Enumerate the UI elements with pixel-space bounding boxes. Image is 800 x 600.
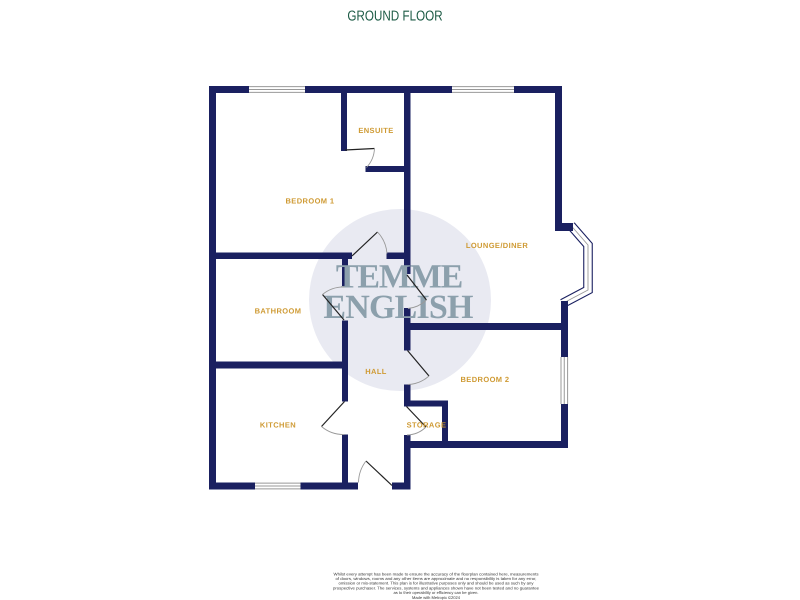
svg-text:ENSUITE: ENSUITE xyxy=(358,126,393,135)
svg-text:LOUNGE/DINER: LOUNGE/DINER xyxy=(466,241,528,250)
svg-text:Made with Metropix ©2024: Made with Metropix ©2024 xyxy=(412,595,461,600)
svg-text:KITCHEN: KITCHEN xyxy=(260,421,296,430)
svg-text:HALL: HALL xyxy=(365,367,387,376)
svg-text:BATHROOM: BATHROOM xyxy=(255,307,302,316)
svg-text:BEDROOM 1: BEDROOM 1 xyxy=(285,197,334,206)
svg-text:BEDROOM 2: BEDROOM 2 xyxy=(460,375,509,384)
svg-text:ENGLISH: ENGLISH xyxy=(323,289,473,326)
svg-text:STORAGE: STORAGE xyxy=(407,421,447,430)
